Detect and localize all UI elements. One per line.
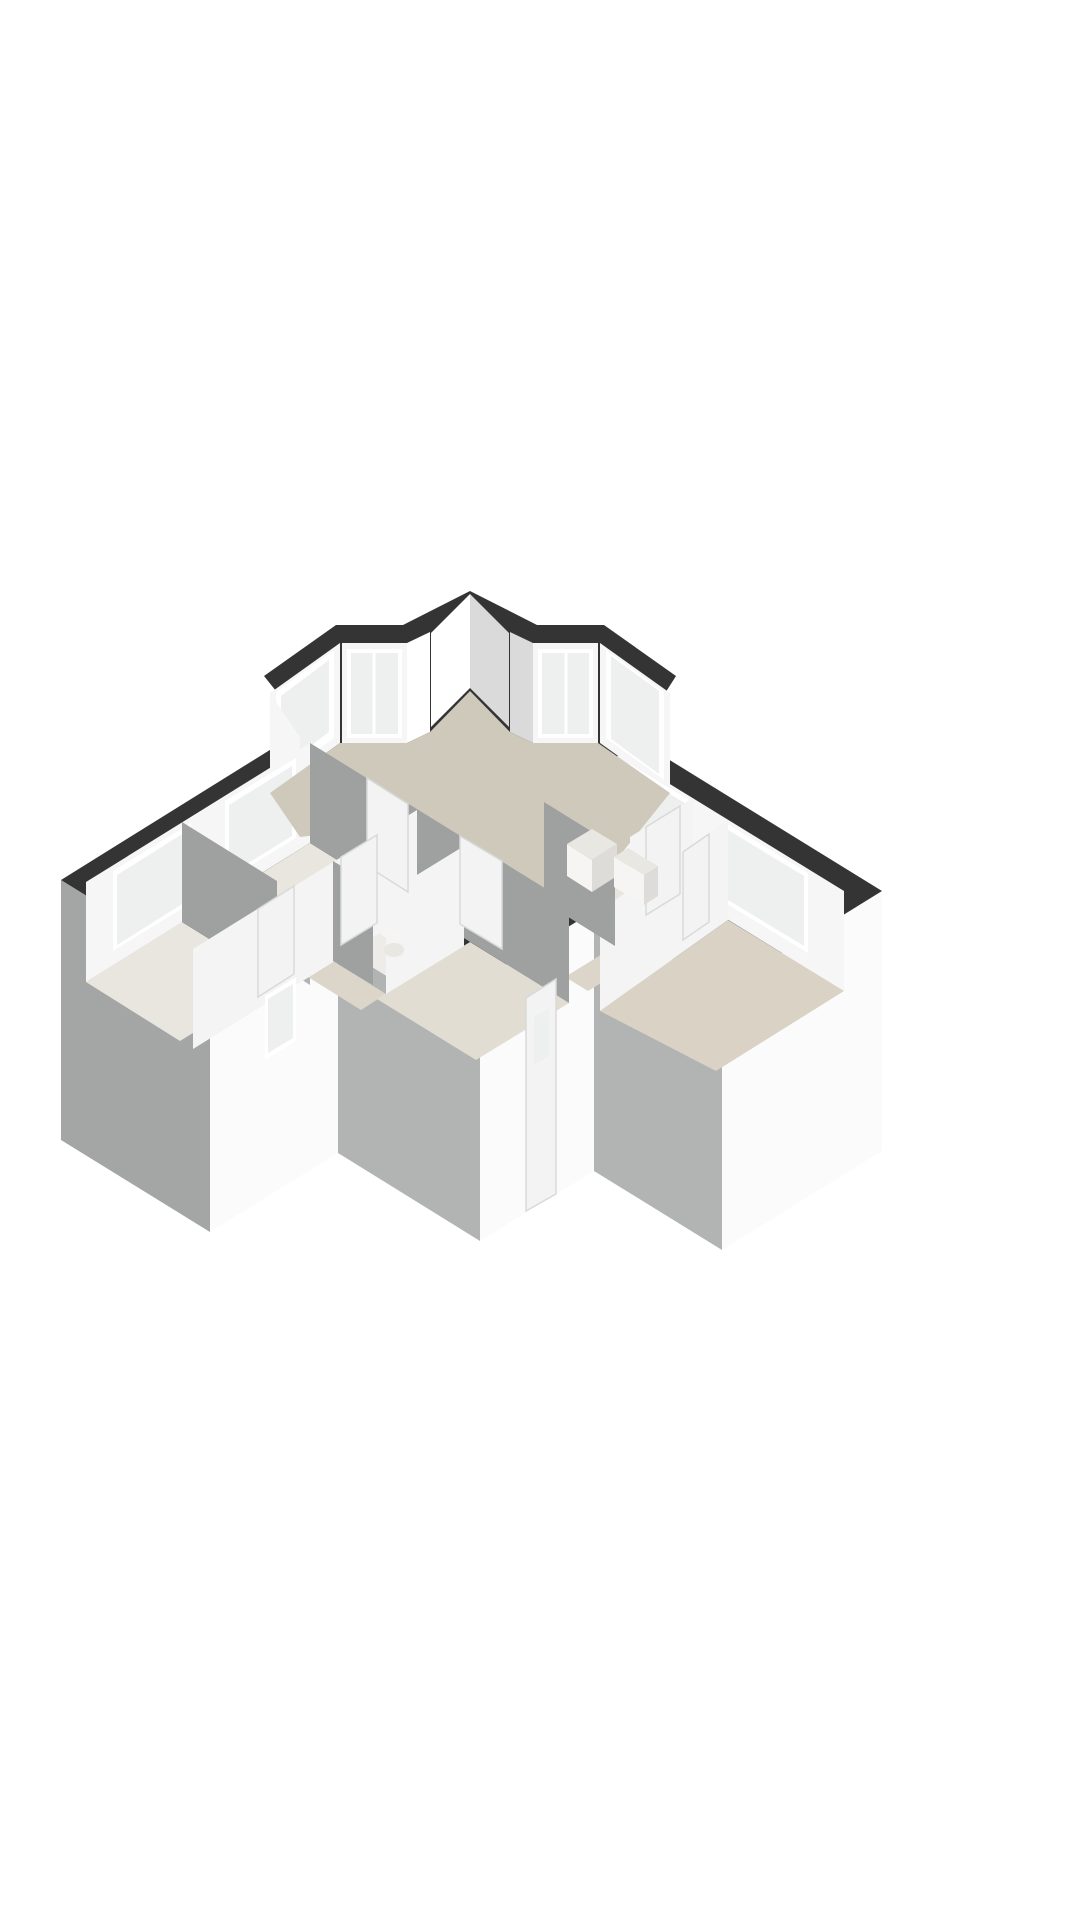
bay-left-notch-side [407, 632, 430, 743]
door-bedroom-3 [683, 834, 709, 940]
bay-right-notch-side [510, 632, 533, 743]
front-door-window [534, 1008, 549, 1065]
page [0, 0, 1080, 1920]
toilet-bowl [384, 943, 404, 957]
floor-plan-3d-image [0, 0, 1080, 1920]
